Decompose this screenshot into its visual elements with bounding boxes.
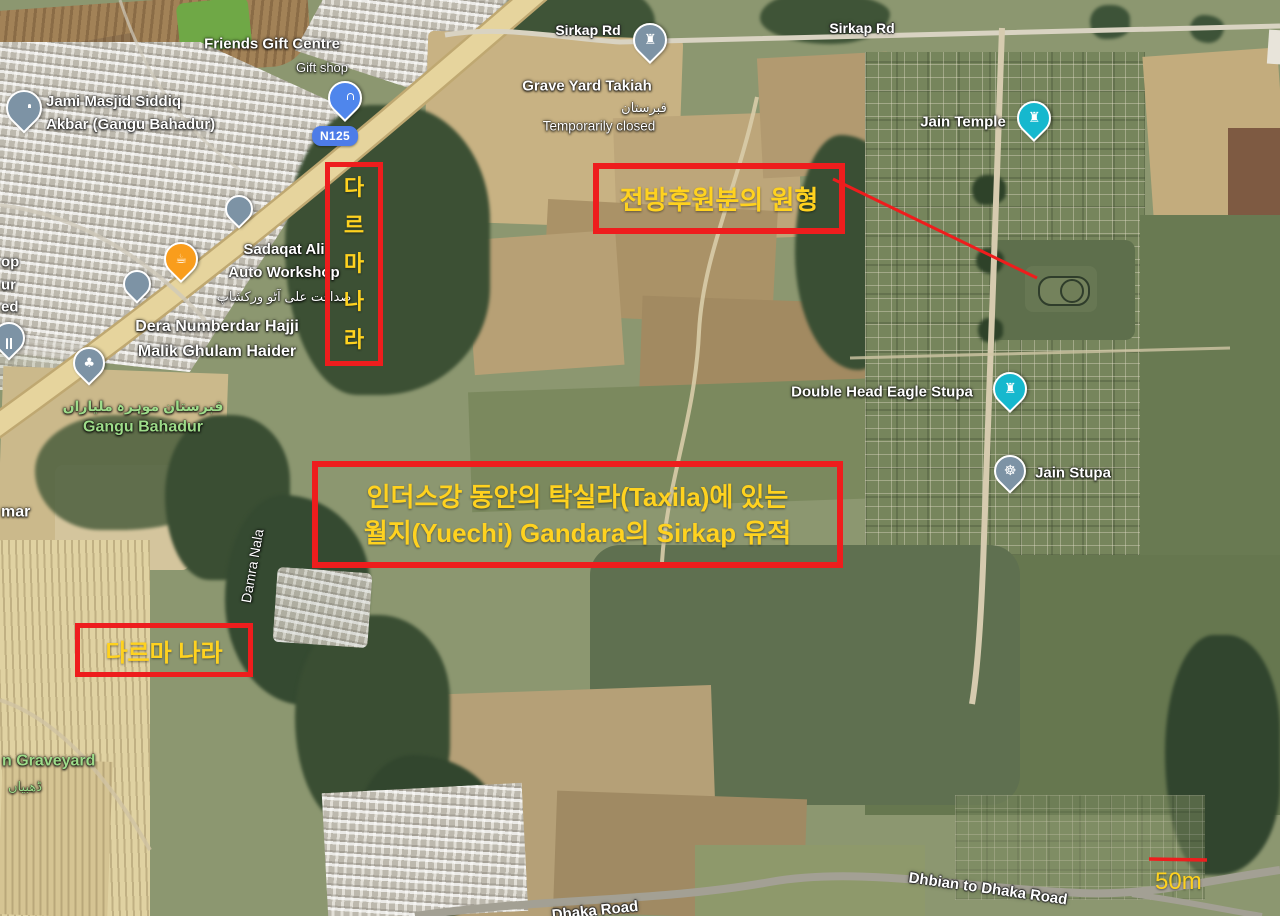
scale-bar-label: 50m xyxy=(1155,868,1202,896)
annotation-lines xyxy=(0,0,1280,916)
annotation-layer: 다 르 마 나 라 전방후원분의 원형 인더스강 동안의 탁실라(Taxila)… xyxy=(0,0,1280,916)
annotation-vertical-box: 다 르 마 나 라 xyxy=(325,162,383,366)
satellite-map[interactable]: ♜ ☕ ♣ ♜ ♜ ☸ Friends Gift Centre Gift sho… xyxy=(0,0,1280,916)
pointer-line xyxy=(833,179,1037,278)
scale-bar-line xyxy=(1149,859,1207,860)
annotation-dharma-box: 다르마 나라 xyxy=(75,623,253,677)
annotation-main-box: 인더스강 동안의 탁실라(Taxila)에 있는 월지(Yuechi) Gand… xyxy=(312,461,843,568)
annotation-keyhole-box: 전방후원분의 원형 xyxy=(593,163,845,234)
